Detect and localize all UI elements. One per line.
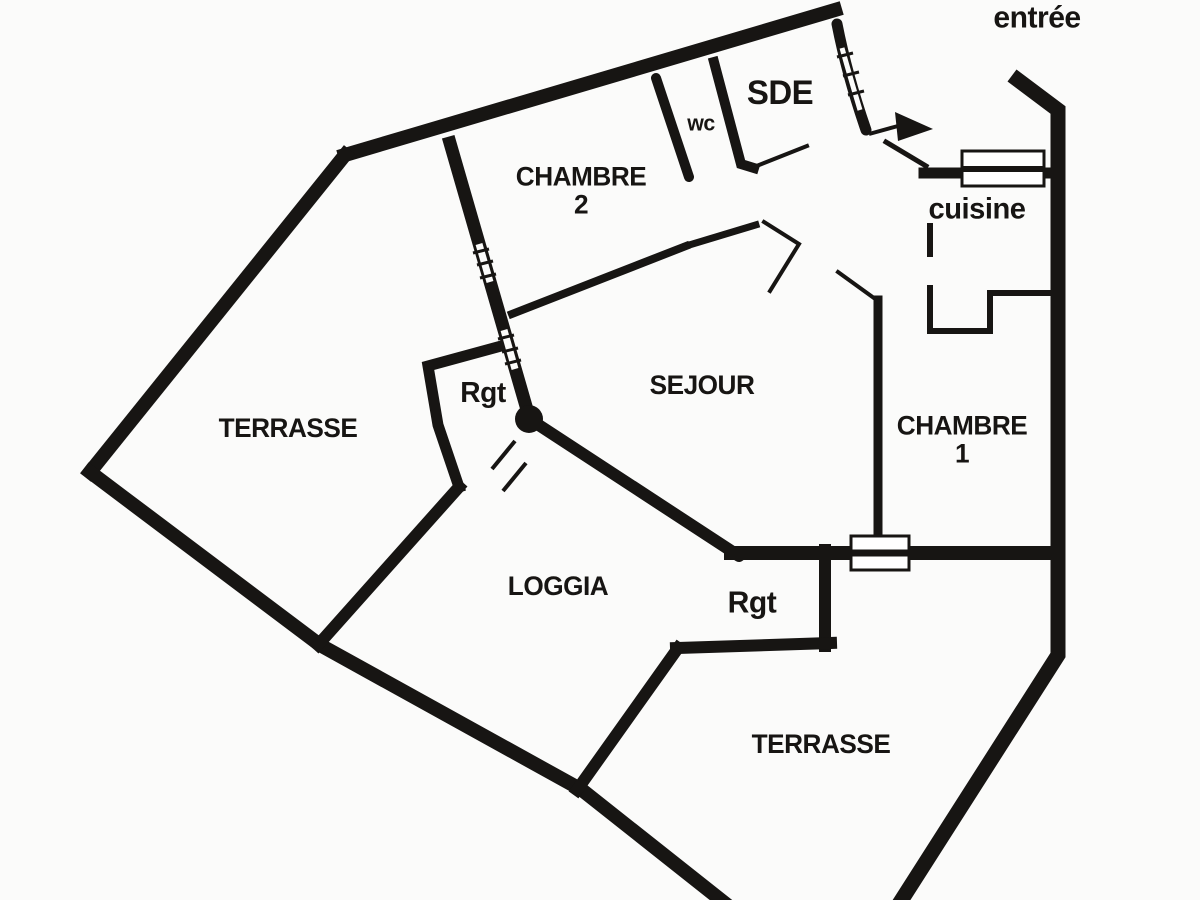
wall-sejour-loggia xyxy=(528,418,739,556)
wall-entry-link xyxy=(886,142,926,166)
room-label-cuisine: cuisine xyxy=(929,193,1026,225)
room-label-chambre2-line1: CHAMBRE xyxy=(516,162,646,192)
room-label-rgt-top: Rgt xyxy=(460,378,505,408)
room-label-chambre1-line1: CHAMBRE xyxy=(897,411,1027,441)
door-swing-icon xyxy=(492,441,526,491)
wall-terrasse-rgt-diagonal xyxy=(318,487,459,645)
wall-sde-bottom xyxy=(754,146,807,167)
room-label-entree: entrée xyxy=(993,2,1080,35)
room-label-terrasse-bottom: TERRASSE xyxy=(752,730,891,758)
entry-arrow-icon xyxy=(869,112,933,141)
wall-cuisine-inner xyxy=(930,288,1055,331)
window-icon xyxy=(851,536,909,570)
wall-loggia-terrasse xyxy=(577,648,678,790)
room-label-terrasse-left: TERRASSE xyxy=(219,414,358,442)
wall-wc-left xyxy=(656,78,689,177)
wall-chambre2-sejour-dashed xyxy=(686,223,762,246)
room-label-wc: wc xyxy=(687,111,715,134)
wall-junction xyxy=(515,405,543,433)
room-label-loggia: LOGGIA xyxy=(508,572,608,600)
door-leaf-sejour xyxy=(764,222,799,291)
wall-chambre2-sejour xyxy=(512,246,686,314)
window-icon xyxy=(962,151,1044,186)
room-label-sejour: SEJOUR xyxy=(650,371,755,399)
entry-door xyxy=(837,24,933,141)
door-leaf-chambre1 xyxy=(838,272,878,301)
floor-plan: entrée SDE wc CHAMBRE 2 cuisine TERRASSE… xyxy=(0,0,1200,900)
room-label-chambre2: CHAMBRE 2 xyxy=(516,163,646,220)
room-label-chambre2-line2: 2 xyxy=(516,191,646,219)
room-label-chambre1-line2: 1 xyxy=(897,440,1027,468)
wall-rgt-bottom xyxy=(676,643,831,648)
room-label-rgt-bottom: Rgt xyxy=(728,587,777,620)
room-label-sde: SDE xyxy=(747,76,813,112)
room-label-chambre1: CHAMBRE 1 xyxy=(897,412,1027,469)
